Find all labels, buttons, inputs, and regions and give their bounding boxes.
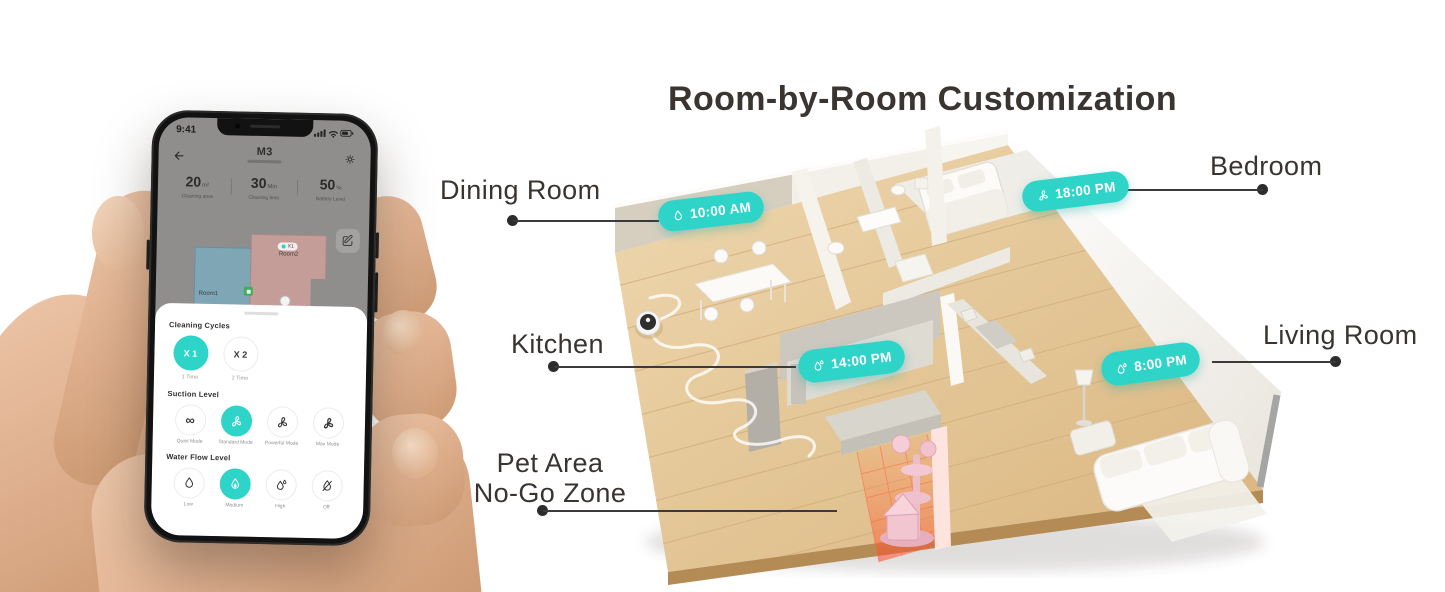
cycle-options: X 1 1 Time X 2 2 Time — [168, 335, 353, 384]
hall-divider-wall — [745, 366, 781, 452]
water-high-label: High — [257, 503, 303, 511]
cycle-x1-value: X 1 — [184, 348, 198, 358]
water-drops-icon — [273, 477, 288, 492]
label-living-room: Living Room — [1263, 321, 1417, 351]
robot-button — [646, 318, 650, 322]
phone: 9:41 — [144, 110, 379, 547]
settings-bottom-sheet: Cleaning Cycles X 1 1 Time X 2 2 Time Su… — [151, 303, 368, 539]
fan-icon — [228, 413, 244, 429]
hand-knuckle — [392, 428, 438, 478]
stat-unit: Min — [267, 184, 277, 190]
water-options: Low Medium — [165, 467, 350, 512]
bath-sink — [891, 185, 905, 195]
page-title: Room-by-Room Customization — [600, 80, 1245, 119]
stat-label: Cleaning area — [164, 193, 231, 200]
cleaning-stats: 20m² Cleaning area 30Min Cleaning time 5… — [164, 173, 365, 203]
suction-max[interactable]: Max Mode — [305, 407, 352, 449]
suction-powerful-label: Powerful Mode — [259, 440, 305, 448]
status-time: 9:41 — [176, 124, 196, 135]
suction-standard[interactable]: Standard Mode — [213, 405, 260, 447]
device-status-text — [247, 160, 281, 164]
room2-label: Room2 — [251, 251, 325, 259]
nav-title-block: M3 — [158, 144, 370, 165]
fan-icon — [1034, 187, 1051, 204]
section-cleaning-cycles: Cleaning Cycles — [169, 320, 353, 333]
water-drop-icon — [810, 357, 827, 374]
status-icons — [314, 127, 354, 139]
hand-knuckle — [383, 310, 423, 356]
edit-pencil-icon — [341, 234, 355, 248]
callout-line-bedroom — [1128, 189, 1263, 191]
suction-max-label: Max Mode — [305, 441, 351, 449]
suction-standard-label: Standard Mode — [213, 439, 259, 447]
map-edit-button[interactable] — [336, 229, 360, 253]
pet-label-line2: No-Go Zone — [470, 479, 630, 509]
wifi-icon — [329, 131, 337, 135]
stat-unit: m² — [202, 183, 209, 189]
badge-time: 8:00 PM — [1133, 351, 1188, 373]
pet-label-line1: Pet Area — [470, 449, 630, 479]
suction-powerful[interactable]: Powerful Mode — [259, 406, 306, 448]
phone-power-button — [375, 232, 379, 258]
water-low-label: Low — [165, 501, 211, 509]
fan-icon — [274, 414, 290, 430]
quiet-icon: ∞ — [185, 413, 195, 426]
room1-label: Room1 — [199, 291, 218, 297]
charging-dock-icon — [244, 287, 253, 296]
stat-cleaning-area: 20m² Cleaning area — [164, 173, 231, 200]
water-drop-icon — [1113, 360, 1130, 377]
water-drop-icon — [670, 207, 685, 222]
gear-icon[interactable] — [343, 152, 356, 165]
device-name: M3 — [159, 144, 371, 160]
label-kitchen: Kitchen — [511, 330, 604, 360]
hand-thumb-tip — [92, 196, 144, 270]
cycle-x2[interactable]: X 2 2 Time — [218, 336, 263, 382]
stat-label: Cleaning time — [230, 194, 297, 201]
stat-unit: % — [336, 186, 341, 192]
water-low[interactable]: Low — [165, 467, 212, 509]
water-off-label: Off — [303, 504, 349, 512]
app-nav: M3 — [158, 144, 370, 170]
badge-time: 10:00 AM — [689, 200, 751, 222]
section-water-flow: Water Flow Level — [166, 452, 350, 465]
label-bedroom: Bedroom — [1210, 152, 1322, 182]
toilet — [828, 242, 844, 254]
water-medium-label: Medium — [211, 502, 257, 510]
water-medium[interactable]: Medium — [211, 468, 258, 510]
cycle-x1-caption: 1 Time — [168, 374, 212, 381]
badge-time: 18:00 PM — [1054, 179, 1116, 201]
callout-line-pet — [543, 510, 837, 512]
stat-value: 50 — [320, 176, 336, 192]
callout-line-living — [1212, 361, 1336, 363]
callout-line-dining — [513, 220, 659, 222]
label-dining-room: Dining Room — [440, 176, 600, 206]
stat-battery: 50% Battery Level — [297, 176, 364, 203]
water-drop-icon — [227, 476, 242, 491]
section-suction-level: Suction Level — [168, 389, 352, 402]
room2-badge-text: X1 — [288, 244, 294, 250]
status-bar: 9:41 — [159, 122, 371, 140]
suction-quiet[interactable]: ∞ Quiet Mode — [167, 404, 214, 446]
suction-options: ∞ Quiet Mode — [167, 404, 352, 449]
room2-cycle-badge: X1 — [278, 242, 298, 250]
suction-quiet-label: Quiet Mode — [167, 438, 213, 446]
cycle-x2-caption: 2 Time — [218, 375, 262, 382]
stat-cleaning-time: 30Min Cleaning time — [230, 174, 297, 201]
water-off[interactable]: Off — [303, 470, 350, 512]
fan-icon — [320, 415, 336, 431]
stat-value: 30 — [251, 175, 267, 191]
cycle-x2-value: X 2 — [234, 349, 248, 359]
water-drop-icon — [181, 475, 196, 490]
cycle-x1[interactable]: X 1 1 Time — [168, 335, 213, 381]
sheet-drag-handle[interactable] — [244, 312, 278, 316]
phone-screen: 9:41 — [151, 117, 372, 539]
battery-icon — [341, 130, 354, 136]
mode-dot-icon — [282, 244, 286, 248]
water-off-icon — [319, 478, 334, 493]
stat-value: 20 — [185, 173, 201, 189]
nightstand — [915, 178, 928, 189]
water-high[interactable]: High — [257, 469, 304, 511]
label-pet-area: Pet Area No-Go Zone — [470, 449, 630, 508]
stat-label: Battery Level — [297, 196, 364, 203]
page: 9:41 — [0, 0, 1445, 592]
cleaning-map[interactable]: Room1 Room2 X1 — [156, 213, 370, 307]
signal-icon — [314, 129, 326, 137]
phone-side-button — [146, 240, 150, 270]
callout-line-kitchen — [554, 366, 796, 368]
map-room1[interactable]: Room1 — [193, 247, 251, 307]
badge-time: 14:00 PM — [830, 349, 892, 371]
